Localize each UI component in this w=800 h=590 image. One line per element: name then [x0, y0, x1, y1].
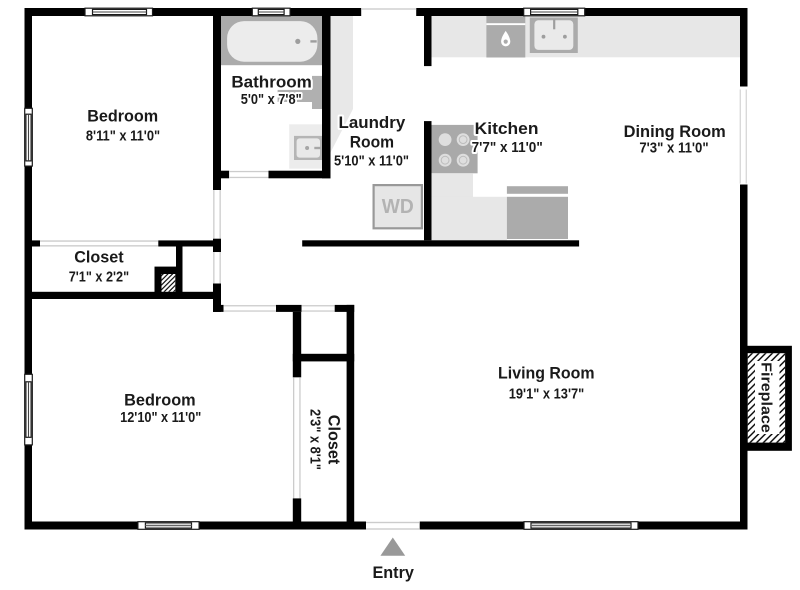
svg-text:WD: WD: [382, 195, 414, 218]
svg-text:Entry: Entry: [372, 564, 414, 582]
svg-text:Closet: Closet: [74, 249, 124, 267]
svg-text:Fireplace: Fireplace: [758, 362, 775, 433]
svg-text:19'1" x 13'7": 19'1" x 13'7": [509, 386, 585, 402]
svg-text:5'0" x 7'8": 5'0" x 7'8": [241, 92, 302, 108]
svg-text:Bedroom: Bedroom: [124, 391, 196, 409]
svg-text:12'10" x 11'0": 12'10" x 11'0": [120, 410, 201, 426]
svg-text:5'10" x 11'0": 5'10" x 11'0": [334, 154, 409, 170]
svg-text:Bedroom: Bedroom: [87, 107, 158, 125]
svg-text:Laundry: Laundry: [339, 114, 407, 132]
svg-text:7'3" x 11'0": 7'3" x 11'0": [639, 141, 708, 157]
svg-text:Kitchen: Kitchen: [475, 120, 539, 138]
svg-text:Bathroom: Bathroom: [231, 74, 312, 92]
svg-text:7'1" x 2'2": 7'1" x 2'2": [69, 270, 129, 286]
svg-text:Living Room: Living Room: [498, 364, 595, 382]
svg-text:Dining Room: Dining Room: [624, 123, 726, 141]
svg-text:Closet: Closet: [324, 415, 342, 465]
svg-text:Room: Room: [350, 134, 394, 152]
svg-text:2'3" x 8'1": 2'3" x 8'1": [307, 409, 323, 470]
svg-text:7'7" x 11'0": 7'7" x 11'0": [472, 140, 543, 156]
svg-text:8'11" x 11'0": 8'11" x 11'0": [86, 129, 160, 145]
